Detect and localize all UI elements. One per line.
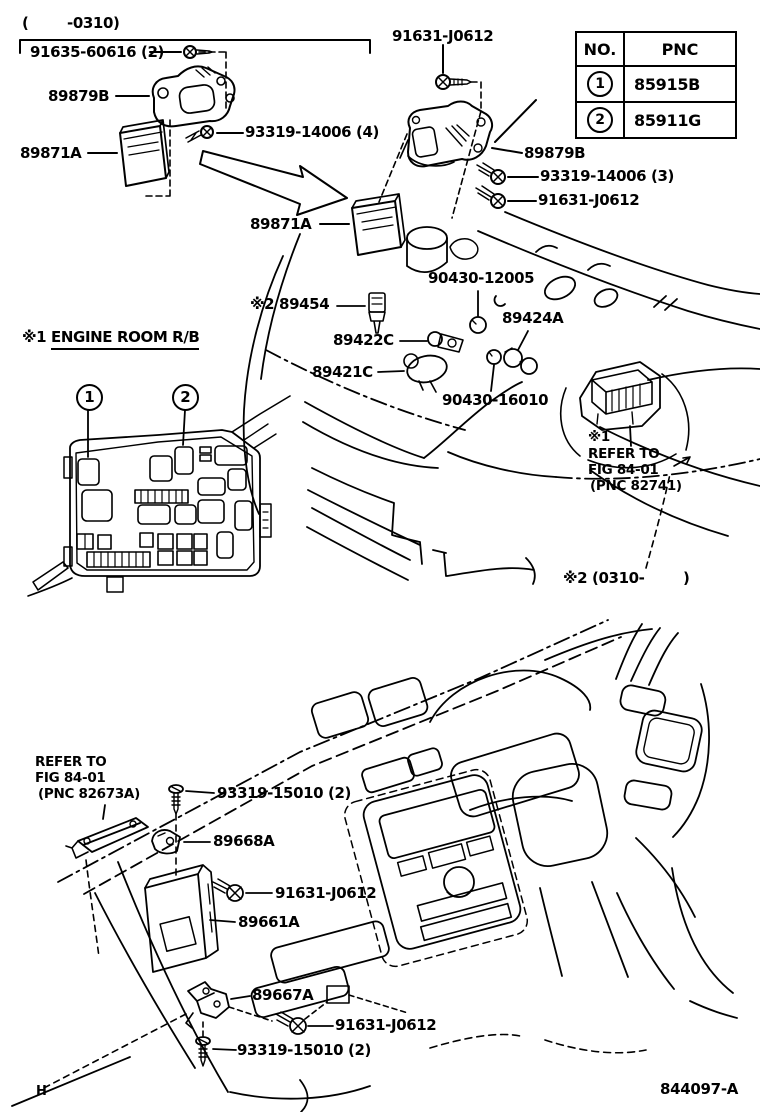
date-range-label: ( -0310) [22,16,119,32]
part-label-89661a: 89661A [238,915,299,931]
note-rb-marker: ※1 [588,430,610,444]
ecu-89871a-center-art [352,194,405,255]
screw-icon-93319-3 [477,163,505,184]
callout-2: 2 [172,384,199,411]
note-0310-label: ※2 (0310- ) [563,571,690,587]
engine-room-rb-art [28,396,290,596]
part-label-89421c: 89421C [312,365,373,381]
engine-room-rb-title: ※1 ENGINE ROOM R/B [22,330,199,346]
sensor-icon-89424a [504,348,537,374]
parts-diagram-page: ( -0310) 91635-60616 (2) 89879B 93319-14… [0,0,760,1112]
bracket-89879b-right-art [400,102,492,167]
screw-icon-93319-bottom [196,1037,210,1066]
direction-arrow [200,151,347,215]
top-left-assembly-art [20,40,370,196]
pnc-col-pnc: PNC [625,33,735,65]
part-label-89424a: 89424A [502,311,563,327]
part-label-89879b-left: 89879B [48,89,109,105]
screw-icon-93319-top [169,785,183,814]
sensor-icon-89454 [369,293,385,333]
note-rb-line1: REFER TO [588,447,659,461]
sheet-letter: H [36,1084,47,1099]
engine-room-marker: ※1 [22,328,51,346]
part-label-93319-14006-4: 93319-14006 (4) [245,125,379,141]
bolt-icon-91631-top [436,75,471,89]
engine-room-text: ENGINE ROOM R/B [51,328,199,350]
part-label-89871a-left: 89871A [20,146,81,162]
part-label-93319-15010-bottom: 93319-15010 (2) [237,1043,371,1059]
ecu-89661a-art [145,865,218,972]
part-label-91635-60616: 91635-60616 (2) [30,45,164,61]
screw-icon-91635 [184,46,212,58]
grommet-icon-90430-16010 [487,350,501,364]
part-label-93319-15010-top: 93319-15010 (2) [217,786,351,802]
bolt-icon-91631-lower [276,1012,306,1034]
part-label-89422c: 89422C [333,333,394,349]
callout-1: 1 [76,384,103,411]
pnc-col-no: NO. [577,33,625,65]
sensor-icon-89422c [428,332,463,352]
bracket-icon-82673a [66,818,148,858]
part-label-89454: ※2 89454 [250,297,329,313]
part-label-89668a: 89668A [213,834,274,850]
valve-icon-89421c [404,352,449,392]
ecu-89871a-left-art [120,120,169,186]
bracket-icon-89667a [186,982,229,1028]
bottom-ref-line2: FIG 84-01 [35,771,106,785]
bolt-icon-91631-upper [213,879,243,901]
pnc-table-header: NO. PNC [577,33,735,67]
part-label-91631-j0612-upper: 91631-J0612 [275,886,376,902]
grommet-icon-90430-12005 [470,317,486,333]
bolt-icon-91631-right [476,186,505,208]
pnc-row-2-value: 85911G [625,103,735,137]
pnc-row-2-no: 2 [587,107,613,133]
bracket-89879b-left-art [153,66,235,126]
pnc-table-row: 2 85911G [577,101,735,137]
part-label-93319-14006-3: 93319-14006 (3) [540,169,674,185]
note-rb-line2: FIG 84-01 [588,463,659,477]
dashboard-art [58,620,737,1112]
screw-icon-93319-4 [186,126,213,142]
part-label-89879b-right: 89879B [524,146,585,162]
pnc-row-1-no: 1 [587,71,613,97]
pnc-table: NO. PNC 1 85915B 2 85911G [575,31,737,139]
part-label-91631-j0612-top: 91631-J0612 [392,29,493,45]
part-label-89871a-center: 89871A [250,217,311,233]
part-label-91631-j0612-lower: 91631-J0612 [335,1018,436,1034]
note-rb-line3: (PNC 82741) [590,479,682,493]
part-label-89667a: 89667A [252,988,313,1004]
figure-number: 844097-A [660,1080,738,1098]
bottom-ref-line3: (PNC 82673A) [38,787,140,801]
part-label-90430-16010: 90430-16010 [442,393,548,409]
part-label-91631-j0612-right: 91631-J0612 [538,193,639,209]
top-right-assembly-art [320,45,538,255]
part-label-90430-12005: 90430-12005 [428,271,534,287]
pnc-table-row: 1 85915B [577,67,735,101]
bottom-ref-line1: REFER TO [35,755,106,769]
pnc-row-1-value: 85915B [625,67,735,101]
